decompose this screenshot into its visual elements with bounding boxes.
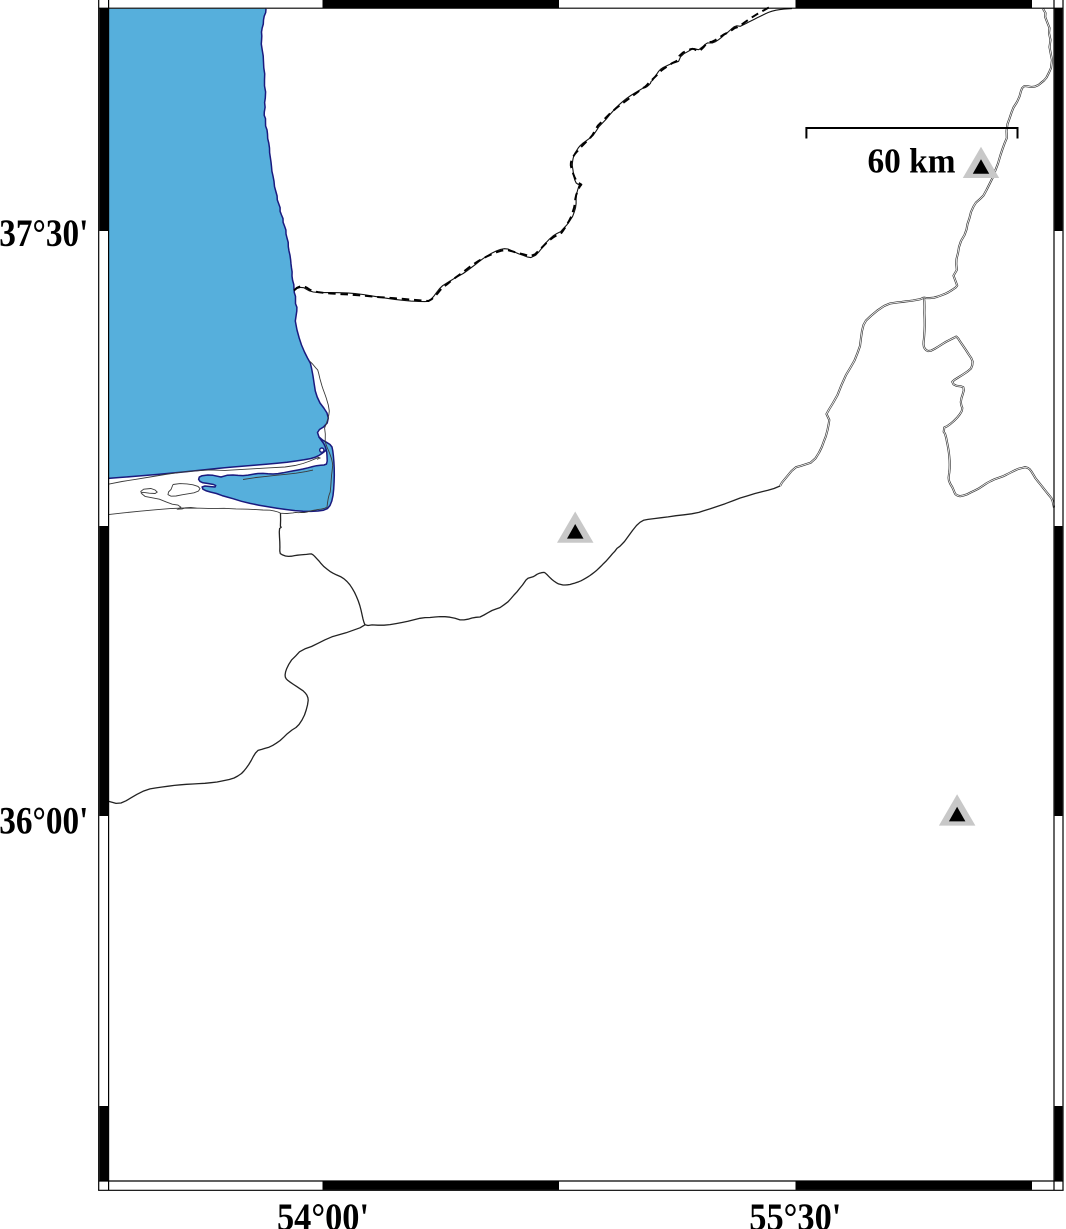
svg-text:55°30': 55°30' — [749, 1196, 841, 1229]
svg-text:37°30': 37°30' — [0, 212, 88, 255]
svg-text:60 km: 60 km — [868, 142, 956, 181]
svg-text:36°00': 36°00' — [0, 800, 88, 843]
svg-text:54°00': 54°00' — [277, 1196, 369, 1229]
